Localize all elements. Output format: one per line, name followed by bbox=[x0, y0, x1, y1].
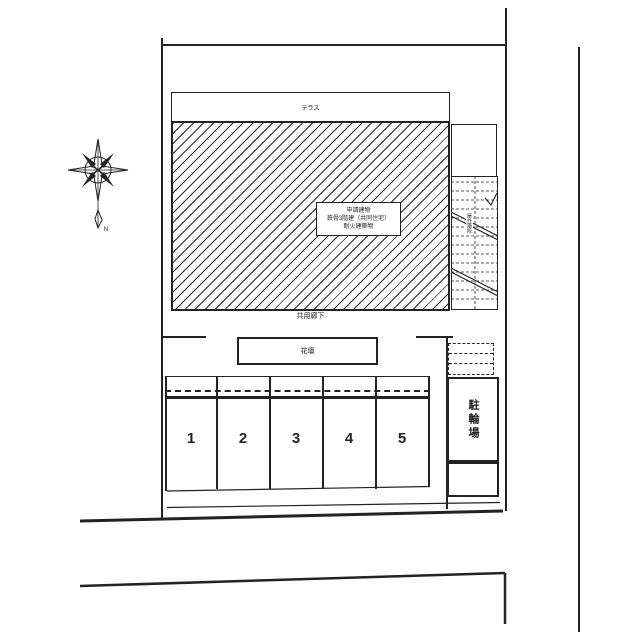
building-label-line2: 鉄骨3階建（共同住宅） bbox=[327, 215, 390, 223]
utility-box-outline bbox=[447, 462, 499, 497]
stall-number-5: 5 bbox=[387, 430, 417, 447]
stall-number-2: 2 bbox=[228, 430, 258, 447]
bicycle-parking-outline: 駐輪場 bbox=[447, 377, 499, 462]
flowerbed-outline: 花壇 bbox=[237, 337, 378, 365]
parking-setback-dashed-line bbox=[165, 390, 430, 392]
outdoor-stair-drawing bbox=[451, 176, 498, 310]
parking-edge-top bbox=[165, 376, 430, 377]
corridor-wall-left bbox=[161, 336, 206, 338]
parking-edge-right bbox=[428, 376, 430, 486]
stall-divider-3 bbox=[322, 377, 324, 489]
site-boundary-west bbox=[161, 38, 163, 519]
rack-row-line-1 bbox=[449, 353, 493, 354]
site-boundary-east bbox=[505, 8, 507, 511]
compass-rose bbox=[58, 125, 138, 237]
bicycle-rack-dashed-outline bbox=[448, 343, 494, 375]
stall-divider-4 bbox=[375, 377, 377, 489]
compass-north-label: N bbox=[100, 227, 112, 233]
stair-landing-outline bbox=[451, 124, 497, 177]
road-edge-east bbox=[578, 47, 580, 632]
bicycle-parking-label: 駐輪場 bbox=[465, 399, 481, 441]
stall-number-1: 1 bbox=[176, 430, 206, 447]
stall-divider-1 bbox=[216, 377, 218, 489]
stairs-label: 屋外階段 bbox=[466, 212, 473, 234]
building-outline bbox=[171, 121, 450, 311]
site-plan-drawing: テラス 申請建物 鉄骨3階建（共同住宅） 耐火建築物 共用廊下 花壇 1 2 3… bbox=[0, 0, 640, 639]
building-label-line3: 耐火建築物 bbox=[343, 223, 373, 231]
terrace-label: テラス bbox=[171, 103, 450, 112]
flowerbed-label: 花壇 bbox=[301, 346, 315, 356]
parking-edge-left bbox=[165, 376, 167, 491]
corridor-label: 共用廊下 bbox=[171, 311, 450, 321]
stall-number-3: 3 bbox=[281, 430, 311, 447]
stall-number-4: 4 bbox=[334, 430, 364, 447]
stall-divider-2 bbox=[269, 377, 271, 489]
parking-front-line bbox=[165, 396, 430, 399]
building-label-line1: 申請建物 bbox=[346, 207, 370, 215]
rack-row-line-2 bbox=[449, 363, 493, 364]
building-label-box: 申請建物 鉄骨3階建（共同住宅） 耐火建築物 bbox=[316, 202, 401, 236]
site-boundary-north bbox=[161, 44, 507, 46]
